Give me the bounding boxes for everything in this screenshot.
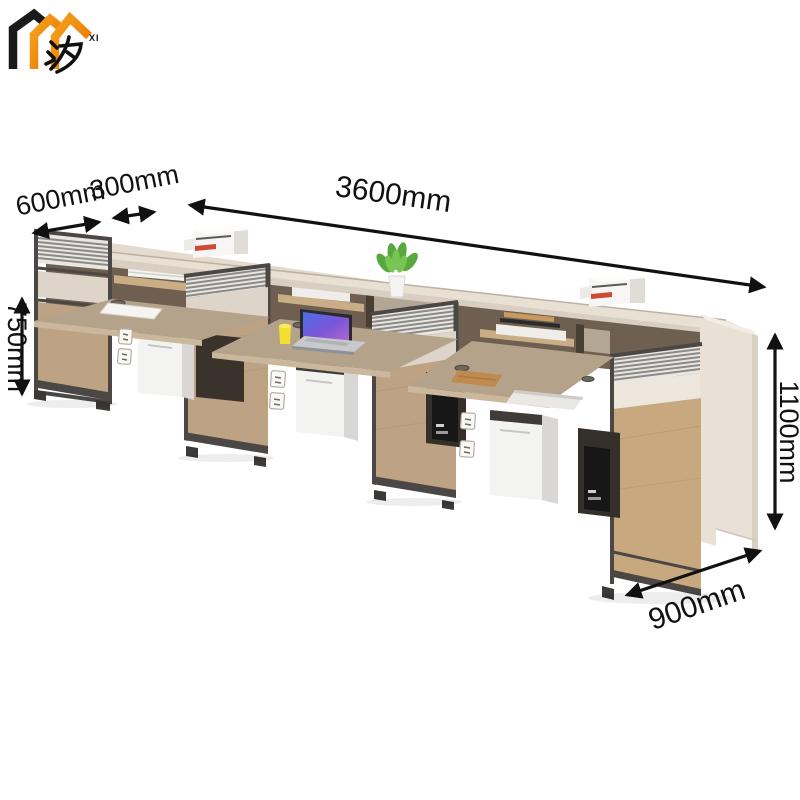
logo-roof-black: [13, 14, 45, 69]
dimension-label-desk-height: 750mm: [2, 302, 32, 392]
yellow-mug: [279, 324, 291, 344]
cubby-back-3: [584, 328, 610, 354]
desk-unit: [27, 226, 758, 604]
divider-screen-3: [610, 344, 702, 409]
under-desk-compartment-3: [578, 428, 620, 518]
logo-character-xi: [46, 37, 81, 72]
printer-right-icon: [580, 274, 645, 307]
dimension-label-shelf-depth: 300mm: [87, 159, 181, 206]
arrow-600: [34, 222, 99, 233]
brand-logo: XI: [13, 14, 100, 72]
printer-left-icon: [184, 226, 248, 258]
cubby-divider-3: [576, 324, 584, 355]
dimension-label-total-height: 1100mm: [774, 380, 800, 483]
cable-grommet-3: [455, 365, 469, 371]
dimension-label-total-length: 3600mm: [333, 170, 453, 219]
product-image-canvas: 600mm 300mm 3600mm 750mm 1100mm 900mm XI: [0, 0, 800, 800]
workstation-scene: 600mm 300mm 3600mm 750mm 1100mm 900mm XI: [0, 0, 800, 800]
end-panel: [700, 314, 758, 554]
arrow-300: [114, 212, 154, 218]
cabinet-3: [490, 410, 558, 504]
logo-subtext: XI: [89, 33, 100, 43]
cable-grommet-4: [582, 377, 594, 382]
